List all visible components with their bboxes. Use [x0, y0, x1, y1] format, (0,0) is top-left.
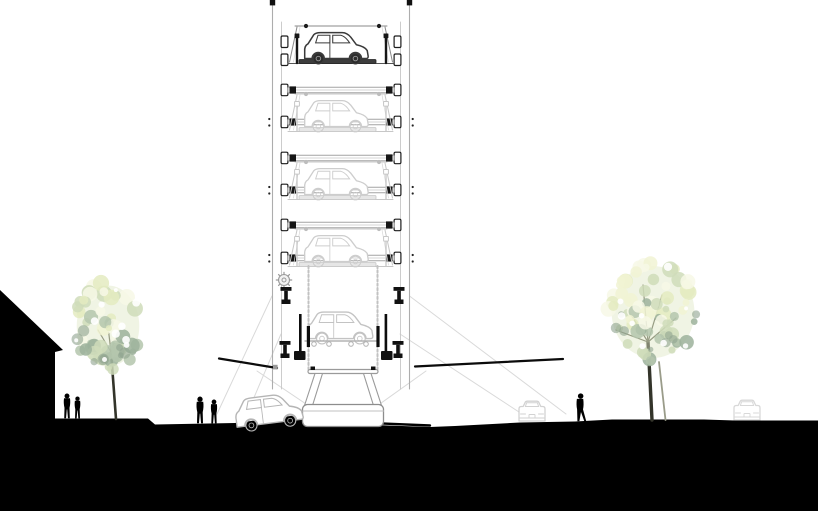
foliage-shadow-blob [692, 310, 700, 318]
foliage-highlight-blob [660, 340, 667, 347]
anchor-head [280, 341, 291, 345]
cradle-pivot-dot-right [377, 24, 381, 28]
cradle-pivot-dot-right [377, 92, 381, 96]
platform-deck [299, 128, 376, 132]
foliage-blob [661, 291, 674, 304]
foliage-blob [80, 343, 92, 355]
foliage-shadow-blob [648, 347, 653, 352]
foliage-highlight-blob [102, 357, 107, 362]
hydraulic-piston [299, 314, 302, 356]
anchor-stem [396, 345, 400, 354]
foliage-highlight-blob [684, 306, 688, 310]
foliage-blob [630, 266, 641, 277]
lift-rod-head [295, 237, 300, 242]
beam-end-block-left [290, 221, 297, 228]
car-wheel [313, 53, 324, 64]
frame-bracket [394, 252, 401, 264]
frame-bracket [394, 54, 401, 66]
parking-tower-section-drawing [0, 0, 818, 511]
foliage-blob [651, 298, 663, 310]
frame-rivet-dot [268, 118, 270, 120]
foliage-highlight-blob [664, 263, 672, 271]
lift-rod-head [384, 237, 389, 242]
cradle-pivot-dot-left [304, 92, 308, 96]
foliage-highlight-blob [617, 298, 623, 304]
beam-end-block-left [290, 86, 297, 93]
foliage-highlight-blob [639, 343, 645, 349]
pedestal-base [303, 405, 384, 427]
frame-rivet-dot [412, 192, 414, 194]
car-wheel [350, 53, 361, 64]
foliage-blob [661, 282, 670, 291]
foliage-highlight-blob [629, 321, 635, 327]
ground-layer [0, 415, 818, 511]
foliage-blob [648, 274, 659, 285]
frame-bracket [394, 36, 401, 48]
foliage-blob [683, 299, 690, 306]
frame-bracket [281, 252, 288, 264]
foliage-blob [617, 276, 626, 285]
foliage-blob [608, 301, 618, 311]
foliage-highlight-blob [112, 330, 120, 338]
anchor-stem [284, 291, 288, 300]
frame-rivet-dot [268, 192, 270, 194]
frame-bracket [281, 219, 288, 231]
frame-rivet-dot [268, 124, 270, 126]
lift-rod-head [384, 170, 389, 175]
frame-rivet-dot [412, 254, 414, 256]
cradle-pivot-dot-left [304, 227, 308, 231]
cradle-pivot-dot-right [377, 160, 381, 164]
foliage-blob [106, 325, 112, 331]
hydraulic-piston [307, 326, 310, 347]
frame-bracket [394, 84, 401, 96]
frame-rivet-dot [412, 118, 414, 120]
frame-bracket [281, 36, 288, 48]
foliage-shadow-blob [619, 326, 629, 336]
foliage-blob [94, 340, 107, 353]
anchor-foot [282, 300, 291, 305]
foliage-blob [99, 287, 108, 296]
lift-rod-head [295, 170, 300, 175]
foliage-blob [95, 306, 105, 316]
hydraulic-piston [385, 314, 388, 356]
foliage-highlight-blob [118, 323, 126, 331]
foliage-highlight-blob [639, 313, 644, 318]
frame-rivet-dot [412, 124, 414, 126]
beam-end-block-right [386, 221, 393, 228]
anchor-stem [397, 291, 401, 300]
foliage-blob [642, 264, 649, 271]
anchor-stem [283, 345, 287, 354]
anchor-foot [281, 354, 290, 359]
transfer-roller [327, 342, 332, 347]
foliage-blob [639, 285, 651, 297]
frame-rivet-dot [268, 260, 270, 262]
anchor-foot [395, 300, 404, 305]
anchor-head [394, 287, 405, 291]
ground-section-mass [0, 415, 818, 511]
anchor-head [393, 341, 404, 345]
frame-bracket [394, 152, 401, 164]
tower-top-cap-1 [407, 0, 412, 5]
frame-bracket [394, 116, 401, 128]
foliage-highlight-blob [74, 338, 78, 342]
beam-end-block-left [290, 154, 297, 161]
frame-bracket [394, 184, 401, 196]
frame-bracket [281, 116, 288, 128]
foliage-highlight-blob [631, 353, 637, 359]
lift-rod-head [295, 34, 300, 39]
architectural-section-canvas [0, 0, 818, 511]
foliage-highlight-blob [132, 299, 140, 307]
foliage-blob [668, 347, 675, 354]
pedestal-cap [311, 367, 316, 371]
tower-top-cap-0 [270, 0, 275, 5]
foliage-blob [79, 296, 88, 305]
foliage-shadow-blob [119, 347, 130, 358]
frame-bracket [281, 152, 288, 164]
frame-rivet-dot [268, 254, 270, 256]
platform-deck [299, 263, 376, 267]
beam-end-block-right [386, 86, 393, 93]
foliage-blob [646, 356, 655, 365]
anchor-foot [394, 354, 403, 359]
transfer-roller [312, 342, 317, 347]
pedestal-cap [371, 367, 376, 371]
foliage-highlight-blob [618, 312, 626, 320]
foliage-blob [623, 339, 633, 349]
hydraulic-piston [376, 326, 379, 347]
foliage-blob [663, 306, 670, 313]
pedestal-top-bar [308, 370, 378, 374]
lift-rod-head [384, 34, 389, 39]
foliage-blob [680, 274, 695, 289]
frame-rivet-dot [412, 186, 414, 188]
platform-deck [299, 196, 376, 200]
platform-deck [299, 60, 376, 64]
frame-bracket [394, 219, 401, 231]
frame-bracket [281, 54, 288, 66]
foliage-blob [691, 318, 698, 325]
frame-rivet-dot [268, 186, 270, 188]
lift-rod-head [295, 102, 300, 107]
cradle-pivot-dot-left [304, 160, 308, 164]
foliage-blob [670, 312, 679, 321]
anchor-head [281, 287, 292, 291]
cradle-pivot-dot-right [377, 227, 381, 231]
foliage-blob [107, 363, 119, 375]
frame-rivet-dot [412, 260, 414, 262]
transfer-roller [349, 342, 354, 347]
foliage-shadow-blob [78, 325, 89, 336]
frame-bracket [281, 184, 288, 196]
cradle-pivot-dot-left [304, 24, 308, 28]
piston-collar [294, 351, 306, 360]
frame-bracket [281, 84, 288, 96]
foliage-highlight-blob [683, 343, 688, 348]
foliage-blob [662, 319, 670, 327]
cable-end-fitting [273, 365, 278, 370]
transfer-roller [364, 342, 369, 347]
lift-rod-head [384, 102, 389, 107]
piston-collar [381, 351, 393, 360]
foliage-highlight-blob [91, 317, 99, 325]
foliage-highlight-blob [99, 302, 105, 308]
foliage-highlight-blob [124, 342, 130, 348]
foliage-highlight-blob [114, 288, 118, 292]
drive-gear [276, 272, 291, 287]
beam-end-block-right [386, 154, 393, 161]
foliage-shadow-blob [90, 358, 97, 365]
